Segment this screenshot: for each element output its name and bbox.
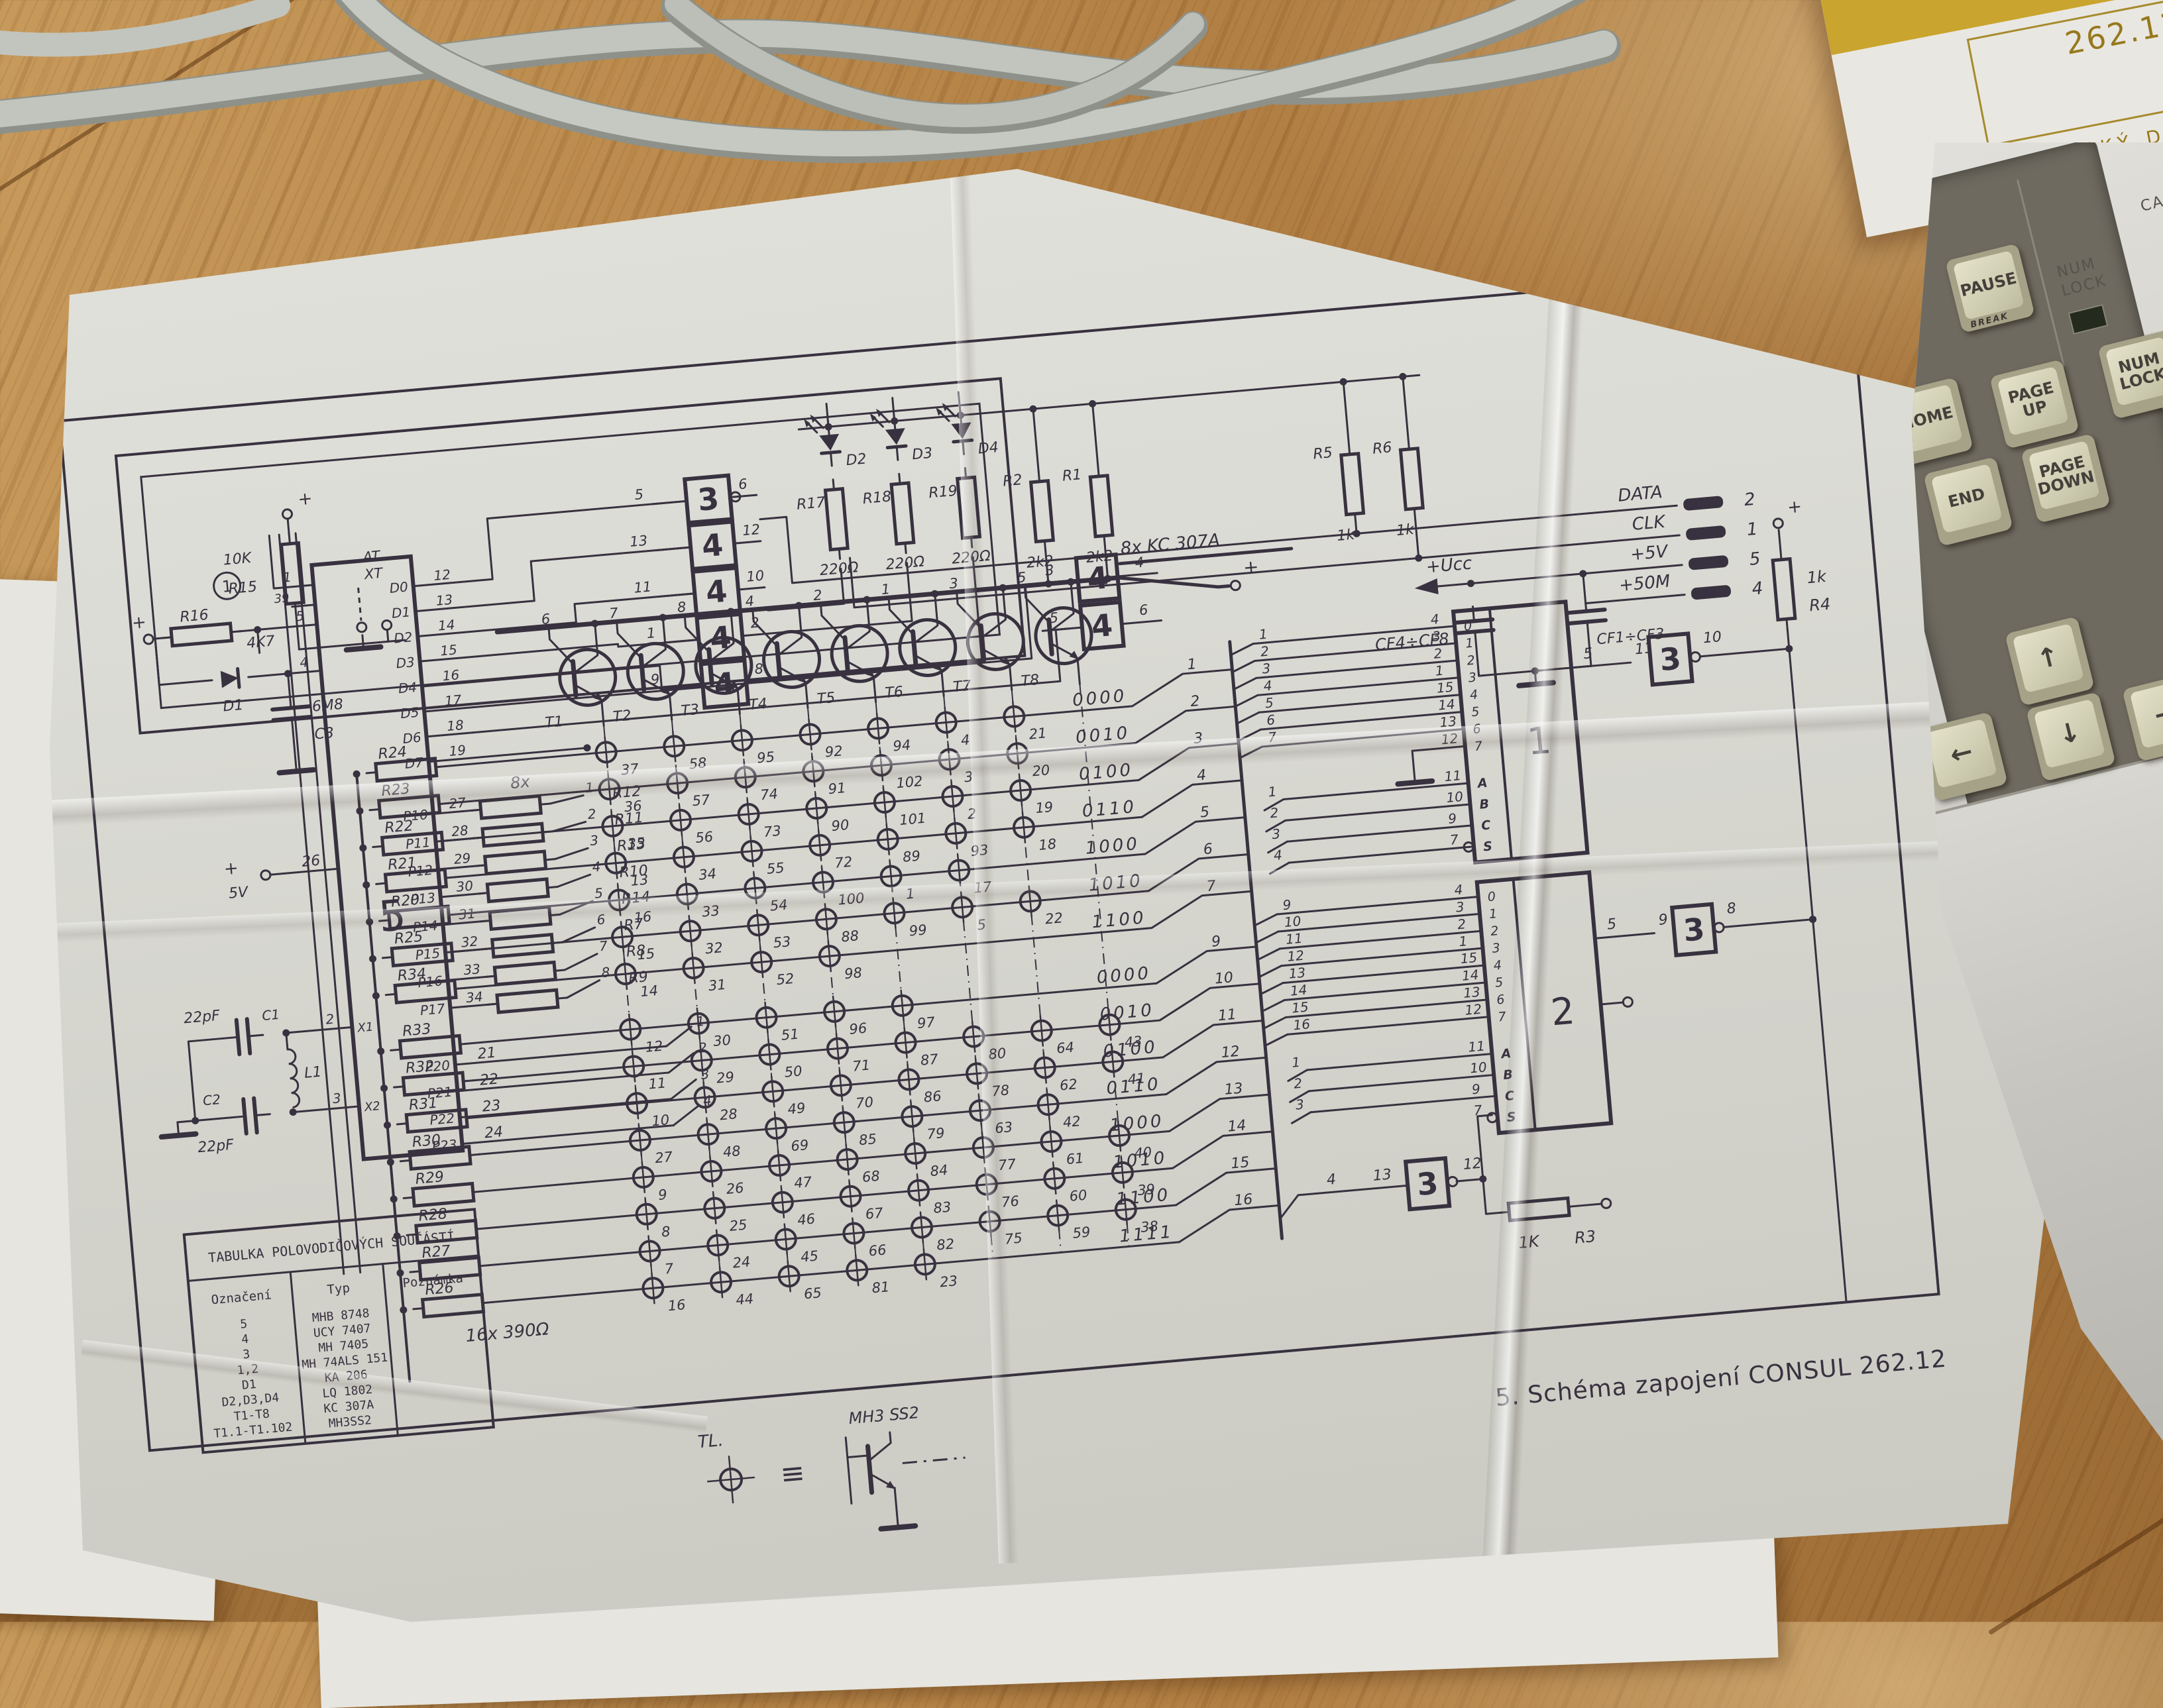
svg-text:21: 21: [477, 1045, 497, 1063]
svg-text:B: B: [1502, 1067, 1513, 1083]
svg-text:7: 7: [608, 605, 619, 621]
svg-text:47: 47: [793, 1174, 812, 1191]
legend: TL.≡MH3 SS2: [696, 1399, 971, 1544]
svg-text:R19: R19: [928, 483, 958, 502]
svg-text:63: 63: [994, 1119, 1013, 1136]
svg-text:P17: P17: [419, 1000, 446, 1018]
svg-text:2: 2: [812, 587, 822, 604]
svg-text:15: 15: [1230, 1154, 1250, 1172]
svg-text:10K: 10K: [223, 550, 253, 569]
svg-text:4: 4: [1430, 611, 1440, 627]
svg-text:77: 77: [997, 1156, 1017, 1173]
svg-text:R2: R2: [1002, 472, 1023, 490]
svg-text:27: 27: [654, 1149, 673, 1166]
svg-text:4: 4: [1273, 847, 1283, 863]
svg-text:T7: T7: [952, 678, 972, 696]
svg-text:78: 78: [991, 1082, 1010, 1099]
svg-text:12: 12: [1221, 1043, 1241, 1061]
svg-text:31: 31: [708, 977, 727, 994]
svg-text:2: 2: [1467, 653, 1476, 668]
svg-text:10: 10: [651, 1112, 670, 1129]
svg-text:1K: 1K: [1518, 1232, 1541, 1252]
svg-text:MH 74ALS 151: MH 74ALS 151: [302, 1351, 388, 1372]
svg-text:R25: R25: [394, 929, 423, 948]
svg-text:4: 4: [241, 1332, 250, 1347]
svg-text:R23: R23: [380, 780, 410, 800]
svg-text:4: 4: [1263, 677, 1273, 694]
svg-text:48: 48: [722, 1143, 742, 1160]
svg-text:13: 13: [1463, 984, 1480, 1001]
svg-text:9: 9: [1282, 896, 1292, 913]
svg-text:R16: R16: [179, 607, 209, 626]
svg-text:33: 33: [463, 961, 480, 978]
svg-text:13: 13: [629, 533, 648, 550]
svg-text:1: 1: [1291, 1054, 1301, 1071]
svg-text:1: 1: [1268, 783, 1278, 800]
svg-text:10: 10: [746, 568, 765, 585]
svg-text:+: +: [131, 612, 147, 633]
svg-text:55: 55: [766, 860, 785, 877]
svg-text:XT: XT: [363, 565, 384, 583]
svg-text:14: 14: [1461, 967, 1479, 984]
svg-text:7: 7: [1267, 729, 1277, 745]
svg-text:2: 2: [325, 1011, 335, 1028]
svg-text:86: 86: [923, 1088, 942, 1105]
svg-text:19: 19: [449, 742, 467, 759]
svg-text:S: S: [1506, 1110, 1517, 1125]
svg-text:7: 7: [664, 1260, 675, 1277]
svg-text:12: 12: [1464, 1001, 1482, 1018]
svg-text:3: 3: [948, 575, 958, 592]
svg-text:3: 3: [1295, 1096, 1305, 1113]
svg-text:A: A: [1476, 776, 1488, 791]
svg-text:+: +: [223, 858, 239, 879]
svg-text:24: 24: [732, 1254, 751, 1271]
svg-text:6: 6: [1266, 712, 1276, 728]
svg-text:T4: T4: [748, 696, 768, 714]
svg-text:26: 26: [301, 853, 321, 871]
svg-text:4: 4: [1196, 767, 1207, 784]
svg-text:C2: C2: [202, 1091, 221, 1108]
svg-text:3: 3: [332, 1090, 342, 1106]
svg-text:65: 65: [803, 1285, 822, 1302]
svg-text:T5: T5: [816, 690, 836, 708]
svg-text:17: 17: [444, 692, 463, 709]
svg-text:15: 15: [1436, 679, 1454, 696]
svg-text:2: 2: [1433, 645, 1443, 662]
svg-text:4: 4: [1469, 687, 1478, 702]
svg-text:+: +: [297, 489, 313, 510]
svg-text:13: 13: [1372, 1167, 1392, 1185]
svg-text:4: 4: [960, 731, 970, 748]
svg-text:1: 1: [881, 581, 891, 598]
svg-text:D3: D3: [396, 654, 416, 671]
svg-text:51: 51: [781, 1026, 800, 1043]
svg-text:91: 91: [828, 780, 847, 797]
svg-text:5: 5: [1606, 916, 1617, 934]
svg-text:12: 12: [1286, 947, 1304, 965]
svg-text:10: 10: [1214, 969, 1234, 987]
svg-text:C1: C1: [261, 1006, 280, 1024]
svg-text:35: 35: [627, 835, 646, 852]
svg-text:14: 14: [1437, 696, 1455, 713]
svg-text:A: A: [1500, 1046, 1512, 1061]
desk-plank-seam: [1988, 1444, 2163, 1635]
svg-text:4: 4: [1454, 882, 1464, 898]
svg-text:D4: D4: [977, 439, 999, 458]
svg-text:75: 75: [1004, 1230, 1023, 1247]
svg-text:1k: 1k: [1806, 567, 1828, 588]
photo-of-schematic-on-desk: { "booklet": { "number": "262.12", "titl…: [0, 0, 2163, 1622]
svg-text:6: 6: [596, 911, 606, 928]
svg-text:3: 3: [589, 832, 599, 849]
svg-text:14: 14: [1227, 1117, 1247, 1135]
svg-text:101: 101: [899, 810, 926, 828]
svg-text:10: 10: [1469, 1059, 1487, 1076]
svg-text:R18: R18: [862, 488, 892, 507]
svg-text:+: +: [1787, 497, 1802, 518]
svg-text:37: 37: [620, 761, 639, 778]
svg-text:12: 12: [1441, 730, 1459, 747]
svg-text:8: 8: [601, 964, 611, 981]
svg-text:5: 5: [1264, 694, 1274, 711]
svg-text:2: 2: [1260, 643, 1270, 660]
svg-text:39: 39: [274, 591, 290, 606]
svg-text:5: 5: [1470, 704, 1480, 720]
svg-text:94: 94: [892, 737, 911, 754]
svg-text:67: 67: [865, 1205, 884, 1222]
svg-text:6: 6: [1203, 841, 1213, 858]
svg-text:R4: R4: [1808, 595, 1831, 615]
svg-text:18: 18: [446, 717, 464, 734]
svg-text:5: 5: [1749, 549, 1761, 569]
svg-text:46: 46: [797, 1211, 816, 1228]
svg-text:61: 61: [1066, 1150, 1085, 1167]
svg-text:D2: D2: [846, 451, 867, 469]
svg-text:Poznámka: Poznámka: [402, 1271, 464, 1291]
svg-text:11: 11: [1467, 1038, 1485, 1055]
svg-text:34: 34: [698, 866, 717, 883]
svg-text:Typ: Typ: [327, 1281, 351, 1297]
svg-text:22: 22: [1044, 910, 1064, 927]
svg-text:X2: X2: [363, 1099, 381, 1114]
svg-text:R5: R5: [1312, 445, 1333, 462]
svg-text:24: 24: [484, 1124, 504, 1142]
svg-text:53: 53: [773, 934, 792, 951]
svg-text:3: 3: [1044, 562, 1054, 578]
svg-text:5: 5: [1017, 569, 1026, 586]
svg-text:16: 16: [667, 1297, 687, 1314]
svg-text:MH3 SS2: MH3 SS2: [848, 1403, 920, 1428]
svg-text:T1: T1: [544, 714, 564, 731]
svg-text:T3: T3: [681, 702, 700, 720]
svg-text:+5V: +5V: [1630, 541, 1670, 564]
svg-text:R29: R29: [415, 1169, 445, 1188]
svg-text:88: 88: [840, 928, 860, 945]
svg-text:30: 30: [455, 878, 473, 895]
svg-text:11: 11: [1217, 1006, 1237, 1024]
svg-text:5: 5: [634, 486, 644, 503]
svg-text:4: 4: [1751, 578, 1764, 599]
svg-text:1: 1: [646, 625, 656, 641]
svg-text:≡: ≡: [779, 1456, 806, 1491]
svg-text:T6: T6: [884, 684, 904, 702]
svg-text:80: 80: [988, 1045, 1007, 1062]
svg-text:R20: R20: [390, 892, 420, 911]
svg-text:18: 18: [1038, 836, 1057, 853]
svg-text:2: 2: [1457, 916, 1467, 932]
svg-text:2: 2: [1744, 490, 1756, 510]
gray-cables: [0, 0, 1723, 278]
svg-text:58: 58: [689, 755, 708, 772]
svg-text:MH3SS2: MH3SS2: [328, 1413, 372, 1431]
svg-text:26: 26: [726, 1180, 745, 1197]
svg-text:59: 59: [1072, 1224, 1091, 1241]
svg-text:T2: T2: [612, 708, 632, 725]
svg-text:79: 79: [926, 1125, 946, 1142]
svg-text:10: 10: [1284, 913, 1302, 930]
svg-text:29: 29: [716, 1069, 735, 1086]
svg-text:12: 12: [645, 1038, 664, 1055]
svg-text:2: 2: [698, 1040, 708, 1056]
svg-text:16: 16: [1292, 1016, 1310, 1033]
svg-text:89: 89: [902, 848, 921, 865]
svg-text:95: 95: [756, 749, 775, 766]
svg-text:4: 4: [1090, 607, 1115, 645]
svg-text:25: 25: [729, 1217, 748, 1234]
svg-text:R6: R6: [1372, 439, 1392, 457]
svg-text:14: 14: [1290, 982, 1307, 999]
svg-text:R30: R30: [412, 1132, 441, 1151]
svg-text:14: 14: [639, 983, 659, 1000]
svg-text:R32: R32: [405, 1058, 435, 1077]
svg-text:R17: R17: [796, 494, 826, 513]
svg-text:2: 2: [1490, 924, 1499, 939]
mux2: 294010311122121313154141451513616127111A…: [1252, 851, 1844, 1273]
svg-text:11: 11: [1444, 767, 1462, 784]
caption: 5. Schéma zapojení CONSUL 262.12: [1494, 1346, 1948, 1412]
svg-text:D1: D1: [391, 604, 411, 621]
svg-text:1: 1: [1458, 933, 1468, 949]
svg-text:15: 15: [1460, 949, 1478, 967]
svg-text:62: 62: [1059, 1076, 1078, 1093]
svg-text:96: 96: [848, 1020, 867, 1038]
svg-text:8x: 8x: [510, 773, 531, 793]
svg-text:29: 29: [453, 850, 471, 867]
svg-text:6: 6: [541, 611, 551, 627]
svg-text:5V: 5V: [228, 884, 250, 902]
svg-text:5: 5: [977, 916, 987, 933]
svg-text:9: 9: [657, 1187, 667, 1203]
svg-text:5: 5: [240, 1317, 249, 1332]
svg-text:6: 6: [1138, 602, 1148, 618]
svg-text:D1: D1: [241, 1377, 256, 1393]
svg-text:49: 49: [787, 1100, 806, 1117]
svg-text:12: 12: [433, 566, 451, 584]
svg-text:28: 28: [451, 822, 469, 839]
svg-text:3: 3: [696, 480, 721, 518]
svg-text:D2: D2: [393, 629, 413, 646]
svg-text:15: 15: [439, 641, 457, 659]
svg-text:11: 11: [1285, 930, 1303, 947]
svg-text:3: 3: [1261, 661, 1271, 677]
svg-text:66: 66: [868, 1242, 887, 1259]
svg-text:1,2: 1,2: [237, 1362, 259, 1378]
schematic-drawing: 1+10KR15ATXTD2R17220ΩD3R18220ΩD4R19220ΩR…: [6, 170, 2062, 1653]
svg-text:D3: D3: [911, 445, 933, 464]
svg-text:87: 87: [920, 1051, 939, 1068]
svg-text:20: 20: [1032, 762, 1051, 779]
svg-text:92: 92: [824, 743, 844, 760]
svg-text:45: 45: [800, 1248, 819, 1265]
svg-text:3: 3: [1431, 628, 1441, 645]
svg-text:13: 13: [1224, 1081, 1244, 1098]
svg-text:1: 1: [1186, 656, 1197, 673]
svg-text:32: 32: [461, 933, 478, 950]
svg-text:7: 7: [1474, 739, 1483, 754]
svg-text:9: 9: [1658, 912, 1669, 929]
svg-text:3: 3: [1193, 730, 1203, 747]
svg-text:5. Schéma zapojení CONSUL 262.: 5. Schéma zapojení CONSUL 262.12: [1494, 1346, 1948, 1412]
svg-text:36: 36: [624, 798, 643, 815]
svg-text:84: 84: [930, 1162, 949, 1179]
svg-text:11: 11: [648, 1075, 667, 1092]
svg-text:21: 21: [1028, 725, 1048, 742]
svg-text:1: 1: [1258, 626, 1268, 643]
svg-text:8: 8: [661, 1224, 671, 1240]
svg-text:72: 72: [834, 854, 854, 871]
svg-text:1: 1: [282, 569, 292, 586]
svg-text:3: 3: [243, 1348, 251, 1362]
svg-text:4K7: 4K7: [246, 633, 275, 652]
svg-text:7: 7: [1498, 1010, 1507, 1025]
svg-text:23: 23: [939, 1273, 958, 1290]
svg-text:C: C: [1504, 1089, 1515, 1104]
svg-text:CLK: CLK: [1632, 512, 1667, 535]
svg-text:1: 1: [1488, 906, 1498, 922]
svg-text:98: 98: [844, 965, 863, 982]
svg-text:D0: D0: [389, 578, 409, 596]
svg-text:R21: R21: [387, 855, 417, 874]
svg-text:93: 93: [970, 842, 989, 859]
svg-text:13: 13: [1439, 713, 1457, 730]
svg-text:+50M: +50M: [1618, 571, 1671, 596]
svg-text:32: 32: [704, 939, 724, 957]
svg-text:5: 5: [594, 885, 604, 902]
svg-text:17: 17: [973, 879, 993, 896]
svg-text:3: 3: [1415, 1165, 1440, 1202]
svg-text:AT: AT: [361, 548, 382, 566]
svg-text:0: 0: [1487, 889, 1496, 904]
svg-text:DATA: DATA: [1617, 482, 1663, 506]
svg-text:X1: X1: [357, 1020, 374, 1036]
svg-text:23: 23: [482, 1097, 502, 1115]
svg-text:220Ω: 220Ω: [885, 553, 926, 573]
svg-text:28: 28: [719, 1106, 738, 1123]
svg-text:34: 34: [465, 988, 483, 1006]
svg-text:L1: L1: [304, 1064, 322, 1082]
svg-text:2: 2: [1293, 1075, 1303, 1092]
svg-text:22pF: 22pF: [197, 1137, 235, 1157]
svg-text:16: 16: [634, 908, 653, 926]
svg-text:7: 7: [1206, 878, 1217, 895]
svg-text:9: 9: [1471, 1081, 1481, 1097]
svg-text:3: 3: [1468, 670, 1477, 685]
svg-text:76: 76: [1001, 1193, 1020, 1210]
svg-text:4: 4: [1493, 958, 1502, 973]
svg-text:85: 85: [858, 1131, 877, 1148]
svg-text:56: 56: [694, 829, 714, 846]
svg-text:99: 99: [909, 922, 928, 939]
svg-text:54: 54: [769, 896, 789, 914]
svg-text:R1: R1: [1062, 466, 1082, 484]
svg-text:19: 19: [1034, 799, 1054, 816]
svg-text:100: 100: [837, 890, 865, 908]
svg-text:64: 64: [1056, 1040, 1075, 1057]
svg-text:11: 11: [633, 578, 652, 596]
svg-text:6M8: 6M8: [311, 696, 344, 716]
svg-text:15: 15: [1291, 998, 1309, 1016]
svg-text:16x 390Ω: 16x 390Ω: [465, 1319, 549, 1346]
svg-text:R31: R31: [408, 1095, 438, 1114]
svg-text:5: 5: [1582, 645, 1593, 663]
svg-text:30: 30: [712, 1032, 732, 1049]
svg-text:TL.: TL.: [697, 1430, 724, 1452]
svg-text:12: 12: [742, 521, 761, 539]
svg-text:3: 3: [1658, 641, 1683, 678]
svg-text:13: 13: [435, 592, 453, 609]
svg-text:220Ω: 220Ω: [819, 559, 860, 579]
svg-text:15: 15: [636, 945, 655, 963]
svg-text:3: 3: [1492, 941, 1501, 956]
svg-text:71: 71: [852, 1057, 871, 1074]
top-indicator-section: 1+10KR15ATXTD2R17220ΩD3R18220ΩD4R19220ΩR…: [203, 352, 1441, 727]
svg-text:+: +: [1243, 556, 1260, 579]
svg-text:220Ω: 220Ω: [951, 548, 991, 568]
svg-text:R34: R34: [397, 965, 427, 985]
svg-text:52: 52: [776, 971, 795, 988]
svg-text:9: 9: [1211, 934, 1221, 951]
svg-text:5: 5: [1494, 975, 1504, 990]
svg-text:7: 7: [598, 937, 608, 954]
svg-text:4: 4: [592, 859, 602, 875]
svg-text:7: 7: [1449, 831, 1459, 848]
svg-text:3: 3: [964, 769, 973, 785]
svg-text:13: 13: [1288, 965, 1306, 982]
left-discrete-parts: +R164K7D16M8C322pFC1L1C222pF: [116, 596, 382, 1159]
svg-text:5: 5: [1199, 804, 1210, 821]
svg-text:12: 12: [1463, 1155, 1482, 1173]
booklet-number: 262.12: [2062, 4, 2163, 62]
svg-text:B: B: [1479, 797, 1490, 812]
svg-text:1: 1: [1435, 663, 1445, 679]
svg-text:2: 2: [1269, 804, 1279, 821]
svg-text:8: 8: [677, 599, 687, 615]
svg-text:57: 57: [692, 792, 711, 809]
svg-text:16: 16: [1233, 1191, 1253, 1209]
outer-frames: [60, 264, 1939, 1450]
svg-text:C3: C3: [314, 725, 335, 743]
svg-text:0: 0: [1463, 619, 1472, 634]
svg-text:1: 1: [584, 779, 594, 796]
svg-text:R3: R3: [1574, 1227, 1596, 1248]
svg-text:R15: R15: [228, 578, 258, 598]
svg-text:4: 4: [745, 593, 755, 610]
svg-text:2: 2: [587, 806, 597, 822]
svg-text:S: S: [1482, 839, 1493, 854]
svg-text:14: 14: [437, 617, 455, 634]
svg-text:1: 1: [905, 886, 915, 902]
